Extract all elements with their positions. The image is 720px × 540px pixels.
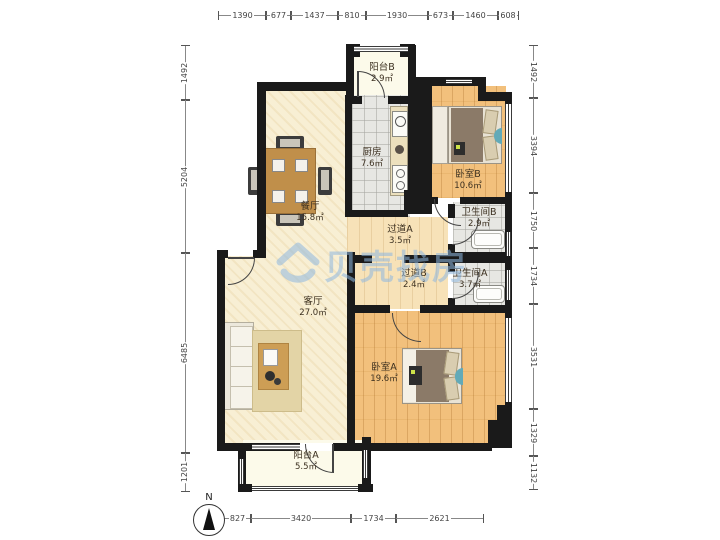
dim-left-5204: 5204 [181,99,190,254]
dim-top-1930: 1930 [365,11,429,20]
window [239,459,244,484]
window [506,270,511,300]
kitchen-sink-icon [392,111,408,137]
room-label-bath-a: 卫生间A3.7㎡ [453,268,488,291]
north-label: N [191,493,227,503]
dim-right-1132: 1132 [529,455,538,490]
kitchen-stove-icon [392,165,408,193]
dim-top-677: 677 [265,11,292,20]
kitchen-counter [390,106,408,196]
headboard-accent [455,368,463,385]
window [252,486,358,491]
room-label-balcony-a: 阳台A5.5㎡ [293,450,319,473]
dim-left-1492: 1492 [181,45,190,101]
coffee-table [258,343,289,390]
dim-left-1201: 1201 [181,452,190,492]
dim-right-1734: 1734 [529,247,538,305]
dim-bottom-2621: 2621 [395,514,484,523]
north-arrow-icon [193,504,225,536]
room-label-balcony-b: 阳台B2.9㎡ [369,62,395,85]
room-label-hallway-b: 过道B2.4㎡ [401,268,427,291]
magazine [263,349,278,366]
window [505,318,512,402]
dim-top-810: 810 [337,11,367,20]
bed-b [448,106,502,164]
floor-hallway-b [352,261,448,309]
nightstand-b [454,142,465,155]
window [363,450,368,478]
room-label-bedroom-b: 卧室B10.6㎡ [454,169,481,192]
room-label-bedroom-a: 卧室A19.6㎡ [370,362,397,385]
bed-a [402,348,462,404]
window [505,104,512,192]
dim-bottom-1734: 1734 [350,514,397,523]
room-label-kitchen: 厨房7.6㎡ [361,147,383,170]
dim-top-1437: 1437 [290,11,339,20]
dim-bottom-827: 827 [223,514,252,523]
window [354,46,408,52]
wardrobe-b [432,106,448,164]
dim-right-3394: 3394 [529,97,538,194]
compass: N [191,493,227,536]
room-label-bath-b: 卫生间B2.9㎡ [461,207,496,230]
room-label-living: 客厅27.0㎡ [299,296,326,319]
cup [274,378,281,385]
window [446,79,472,84]
bathtub-b [471,230,505,249]
dim-left-6485: 6485 [181,252,190,454]
dim-right-3531: 3531 [529,303,538,410]
dim-right-1750: 1750 [529,192,538,249]
room-label-hallway-a: 过道A3.5㎡ [387,224,413,247]
dim-right-1329: 1329 [529,408,538,457]
window [506,232,511,256]
dim-bottom-3420: 3420 [250,514,352,523]
dim-right-1492: 1492 [529,45,538,99]
floor-plan: 阳台B2.9㎡ 厨房7.6㎡ 卧室B10.6㎡ 餐厅15.8㎡ 过道A3.5㎡ … [0,0,720,540]
room-label-dining: 餐厅15.8㎡ [296,201,323,224]
dining-chair [318,167,332,195]
kitchen-fixture-icon [395,145,404,154]
sofa [220,322,254,410]
dim-top-608: 608 [497,11,519,20]
tv-stand [409,366,422,385]
dim-top-673: 673 [427,11,454,20]
dim-top-1390: 1390 [218,11,267,20]
dim-top-1460: 1460 [452,11,499,20]
